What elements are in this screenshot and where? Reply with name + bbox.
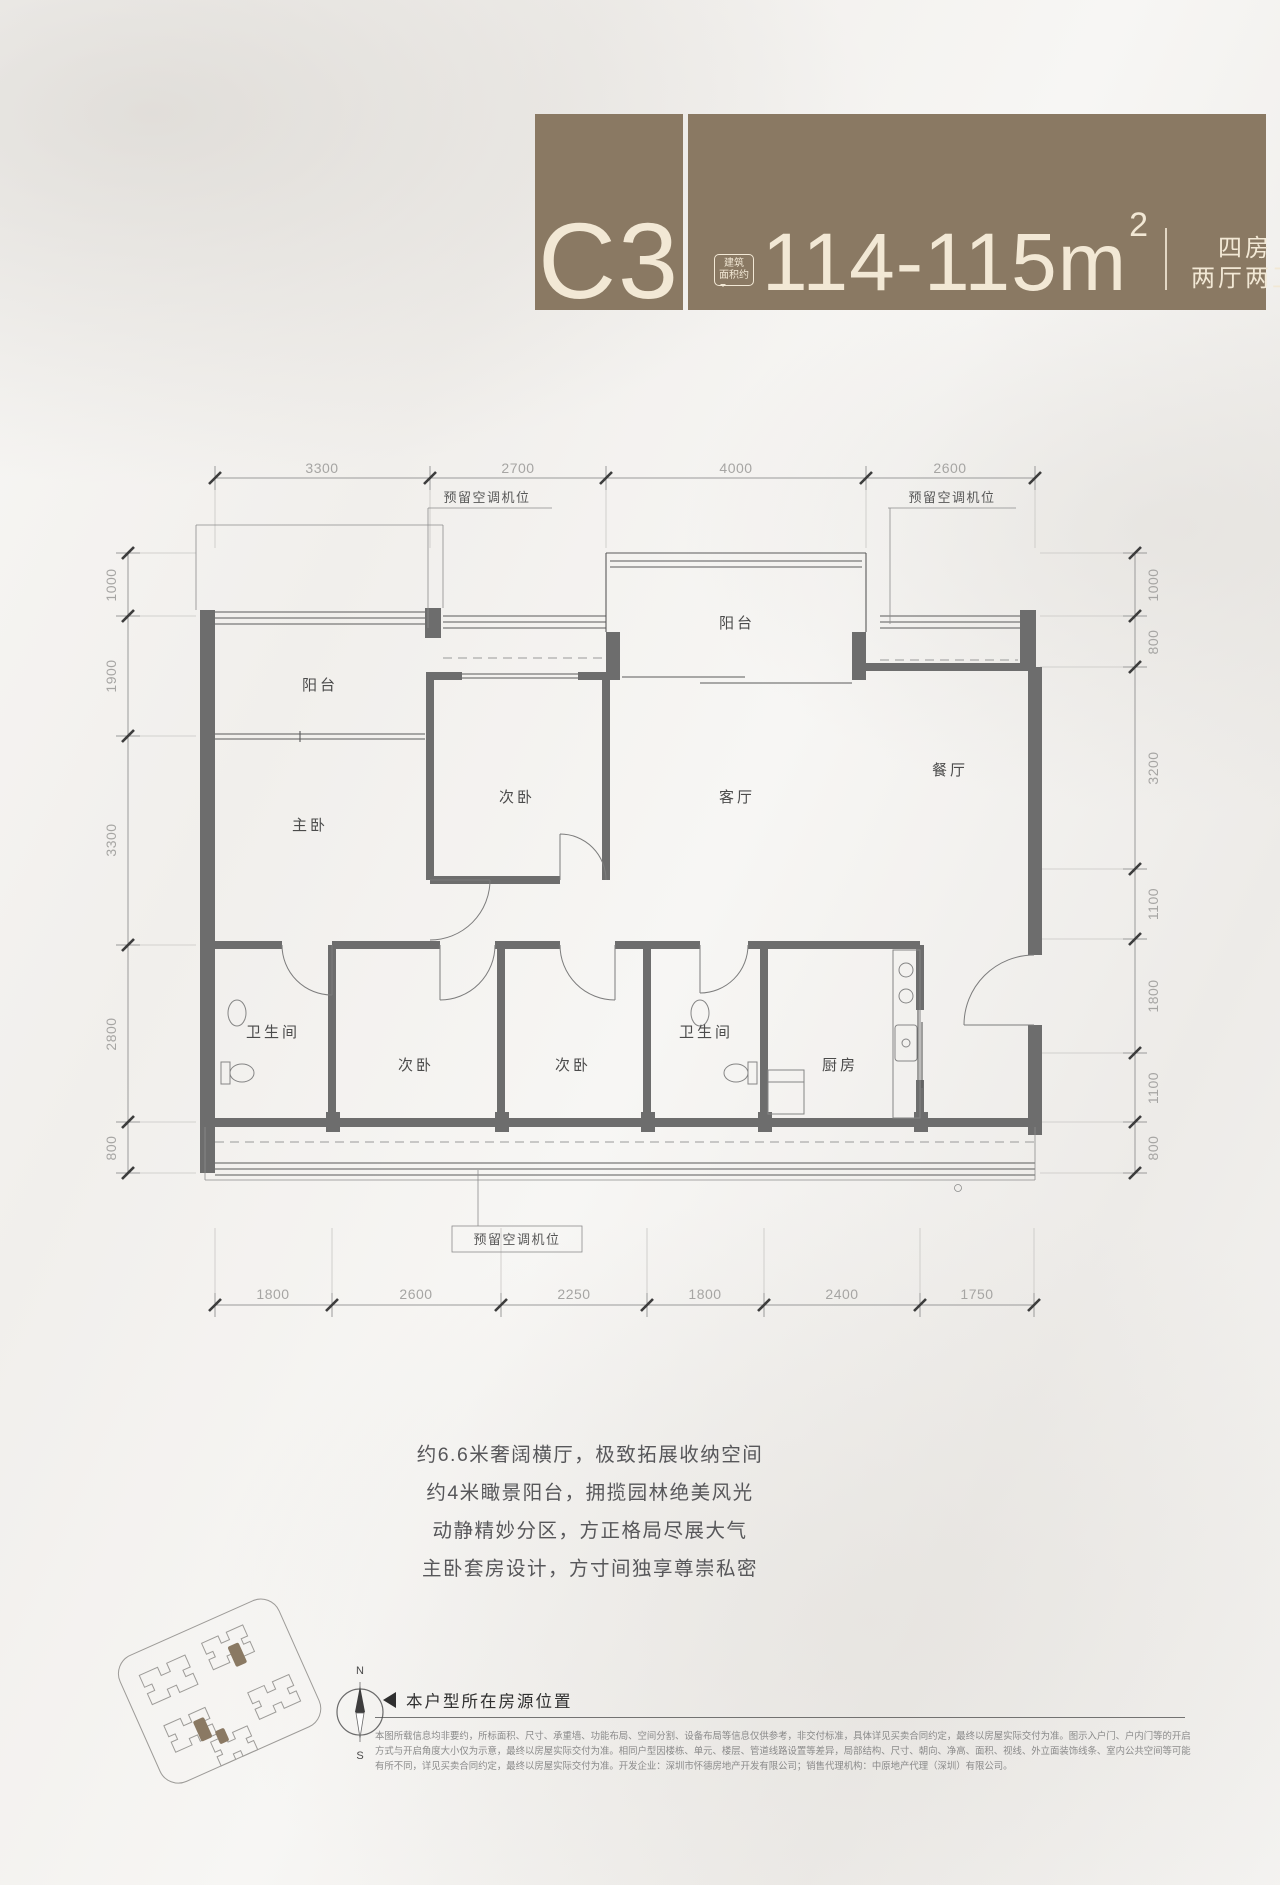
area-value: 114-115m2 — [762, 230, 1147, 296]
room-bedroom-bottom-left: 次卧 — [398, 1057, 434, 1074]
room-living: 客厅 — [719, 789, 755, 806]
dim-bottom-4: 1800 — [688, 1286, 721, 1302]
site-plan — [95, 1592, 345, 1807]
ac-label-top-left: 预留空调机位 — [443, 490, 530, 505]
dim-right-4: 1100 — [1145, 888, 1161, 920]
dim-right-6: 1100 — [1145, 1072, 1161, 1104]
area-badge: 建筑 面积约 — [714, 254, 754, 286]
caption-rule — [375, 1717, 1185, 1718]
location-caption: 本户型所在房源位置 — [375, 1688, 573, 1712]
room-dining: 餐厅 — [932, 762, 968, 779]
unit-code-block: C3 — [535, 114, 683, 310]
layout-summary: 四房 两厅两卫 — [1191, 234, 1280, 294]
dimensions-right: 1000 800 3200 1100 1800 1100 800 — [1123, 547, 1161, 1179]
ac-labels: 预留空调机位 预留空调机位 预留空调机位 — [428, 490, 1016, 1252]
floorplan-poster: C3 建筑 面积约 114-115m2 四房 两厅两卫 — [0, 0, 1280, 1885]
copy-line-2: 约4米瞰景阳台，拥揽园林绝美风光 — [140, 1474, 1040, 1512]
dim-right-7: 800 — [1145, 1136, 1161, 1161]
dim-bottom-6: 1750 — [960, 1286, 993, 1302]
windows-and-balconies — [196, 525, 1035, 1192]
unit-info-block: 建筑 面积约 114-115m2 四房 两厅两卫 — [688, 114, 1266, 310]
dim-left-5: 800 — [103, 1136, 119, 1161]
dim-bottom-2: 2600 — [399, 1286, 432, 1302]
dim-bottom-5: 2400 — [825, 1286, 858, 1302]
unit-code: C3 — [538, 211, 680, 310]
room-kitchen: 厨房 — [822, 1057, 858, 1074]
area-badge-line2: 面积约 — [717, 270, 751, 282]
dim-top-2: 2700 — [501, 460, 534, 476]
layout-line2: 两厅两卫 — [1191, 264, 1280, 294]
layout-line1: 四房 — [1191, 234, 1280, 264]
compass-needle-icon — [355, 1686, 365, 1716]
location-caption-text: 本户型所在房源位置 — [406, 1688, 573, 1712]
compass-south: S — [356, 1750, 363, 1762]
dim-right-3: 3200 — [1145, 751, 1161, 784]
marketing-copy: 约6.6米奢阔横厅，极致拓展收纳空间 约4米瞰景阳台，拥揽园林绝美风光 动静精妙… — [140, 1436, 1040, 1588]
dim-top-1: 3300 — [305, 460, 338, 476]
room-bath-mid: 卫生间 — [679, 1024, 733, 1041]
dim-top-4: 2600 — [933, 460, 966, 476]
room-bedroom-bottom-mid: 次卧 — [555, 1057, 591, 1074]
dimensions-top: 3300 2700 4000 2600 — [209, 460, 1041, 490]
dim-left-2: 1900 — [103, 659, 119, 692]
dim-bottom-3: 2250 — [557, 1286, 590, 1302]
dim-top-3: 4000 — [719, 460, 752, 476]
dim-right-5: 1800 — [1145, 979, 1161, 1012]
fixtures — [221, 950, 920, 1118]
header-divider — [1165, 228, 1167, 290]
dim-bottom-1: 1800 — [256, 1286, 289, 1302]
dim-left-3: 3300 — [103, 823, 119, 856]
compass-north: N — [356, 1665, 364, 1677]
disclaimer-line-1: 本图所载信息均非要约，所标面积、尺寸、承重墙、功能布局、空间分割、设备布局等信息… — [375, 1728, 1193, 1743]
room-bath-left: 卫生间 — [246, 1024, 300, 1041]
dimensions-bottom: 1800 2600 2250 1800 2400 1750 — [209, 1286, 1040, 1317]
area-exponent: 2 — [1129, 206, 1149, 244]
dimension-extension-lines — [132, 482, 1131, 1301]
ac-label-top-right: 预留空调机位 — [908, 490, 995, 505]
left-triangle-icon — [375, 1692, 396, 1708]
disclaimer: 本图所载信息均非要约，所标面积、尺寸、承重墙、功能布局、空间分割、设备布局等信息… — [375, 1728, 1193, 1773]
copy-line-4: 主卧套房设计，方寸间独享尊崇私密 — [140, 1550, 1040, 1588]
dim-right-2: 800 — [1145, 630, 1161, 655]
dim-right-1: 1000 — [1145, 568, 1161, 601]
room-balcony-center: 阳台 — [719, 615, 755, 632]
copy-line-1: 约6.6米奢阔横厅，极致拓展收纳空间 — [140, 1436, 1040, 1474]
header: C3 建筑 面积约 114-115m2 四房 两厅两卫 — [535, 114, 1266, 310]
area-badge-line1: 建筑 — [717, 258, 751, 270]
dimensions-left: 1000 1900 3300 2800 800 — [103, 547, 140, 1179]
ac-label-bottom: 预留空调机位 — [473, 1232, 560, 1247]
room-bedroom-top: 次卧 — [499, 789, 535, 806]
copy-line-3: 动静精妙分区，方正格局尽展大气 — [140, 1512, 1040, 1550]
room-balcony-left: 阳台 — [302, 677, 338, 694]
room-master: 主卧 — [292, 817, 328, 834]
dim-left-1: 1000 — [103, 568, 119, 601]
disclaimer-line-2: 方式与开启角度大小仅为示意，最终以房屋实际交付为准。相同户型因楼栋、单元、楼层、… — [375, 1743, 1193, 1758]
dim-left-4: 2800 — [103, 1017, 119, 1050]
disclaimer-line-3: 有所不同，详见买卖合同约定，最终以房屋实际交付为准。开发企业：深圳市怀德房地产开… — [375, 1758, 1193, 1773]
floorplan-drawing: 3300 2700 4000 2600 1800 2600 2250 1800 … — [0, 370, 1280, 1380]
